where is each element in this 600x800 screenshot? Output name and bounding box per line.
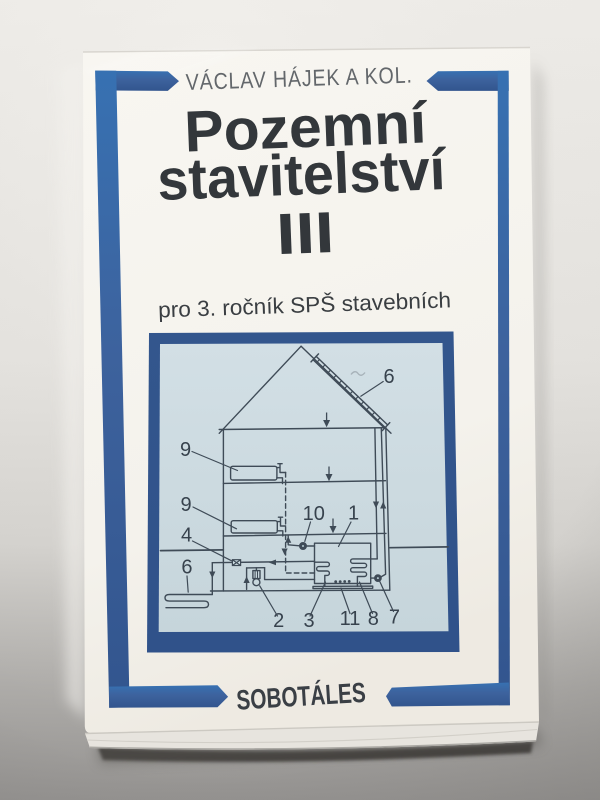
svg-text:2: 2 (273, 610, 284, 632)
svg-text:8: 8 (368, 608, 379, 630)
svg-text:11: 11 (340, 608, 361, 630)
svg-text:6: 6 (383, 366, 394, 388)
svg-text:7: 7 (389, 607, 400, 629)
svg-text:1: 1 (348, 503, 359, 525)
svg-text:9: 9 (180, 439, 191, 461)
svg-text:9: 9 (180, 494, 191, 516)
svg-text:10: 10 (303, 503, 325, 525)
svg-text:III: III (275, 200, 335, 267)
svg-text:6: 6 (181, 557, 192, 579)
svg-text:3: 3 (303, 610, 314, 632)
svg-text:4: 4 (181, 525, 192, 547)
